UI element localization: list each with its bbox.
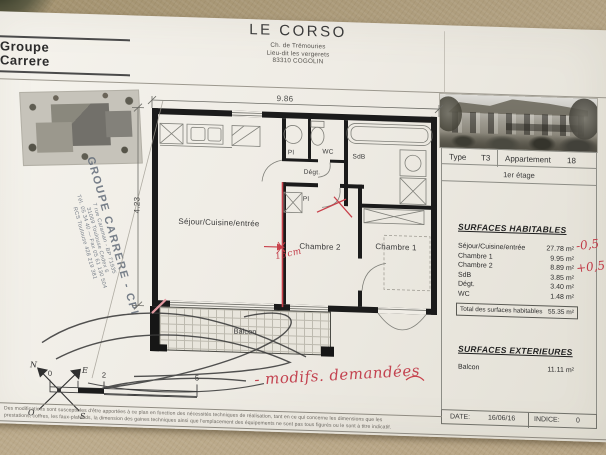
- surface-value: 11.11 m²: [547, 366, 574, 374]
- surface-label: Chambre 1: [458, 253, 493, 261]
- room-label-placard-mid: Pl: [300, 196, 312, 203]
- balcony-structure: [150, 306, 334, 357]
- surface-value: 3.40 m²: [550, 284, 574, 292]
- date-row-divider: [528, 413, 529, 428]
- dimension-height: 4.23: [133, 190, 142, 220]
- indice-label: INDICE:: [534, 416, 560, 424]
- type-label: Type: [449, 152, 466, 162]
- photographed-floor-plan-document: { "colors": { "annotation_red": "#c23c48…: [0, 0, 606, 455]
- apartment-number: 18: [567, 156, 576, 165]
- document-sheet: Groupe Carrere LE CORSO Ch. de Trémourie…: [0, 11, 606, 442]
- handwritten-delta-sejour: -0,5: [575, 237, 600, 253]
- room-label-degt: Dégt.: [300, 169, 324, 177]
- surface-label: WC: [458, 291, 470, 298]
- total-value: 55.35 m²: [548, 308, 574, 316]
- type-row-divider: [497, 150, 498, 167]
- surface-label: Dégt.: [458, 281, 475, 289]
- surface-value: 27.78 m²: [546, 245, 574, 253]
- surface-value: 3.85 m²: [550, 275, 574, 283]
- type-value: T3: [481, 153, 490, 162]
- surface-label: Balcon: [458, 364, 479, 372]
- surface-label: Chambre 2: [458, 262, 493, 270]
- surface-value: 9.95 m²: [550, 256, 574, 264]
- date-value: 16/06/16: [488, 415, 515, 423]
- apartment-label: Appartement: [505, 154, 551, 164]
- dimension-width: 9.86: [255, 93, 315, 104]
- plan-walls: [152, 108, 437, 315]
- surface-label: SdB: [458, 272, 471, 279]
- scale-label-5: 5: [193, 373, 201, 382]
- table-right-border: [596, 152, 597, 414]
- compass-east-label: E: [82, 366, 88, 375]
- surface-value: 1.48 m²: [550, 294, 574, 302]
- date-label: DATE:: [450, 413, 470, 421]
- room-label-wc: WC: [320, 148, 336, 156]
- surface-label: Séjour/Cuisine/entrée: [458, 243, 525, 252]
- compass-north-label: N: [30, 360, 37, 369]
- scale-label-1: 1: [74, 370, 82, 379]
- table-left-border: [441, 147, 442, 409]
- total-label: Total des surfaces habitables: [460, 306, 542, 316]
- scale-label-0: 0: [46, 369, 54, 378]
- room-label-sdb: SdB: [350, 153, 368, 161]
- indice-value: 0: [576, 417, 580, 424]
- room-label-placard-top: Pl: [285, 149, 297, 156]
- scale-label-2: 2: [100, 370, 108, 379]
- surface-value: 8.89 m²: [550, 265, 574, 273]
